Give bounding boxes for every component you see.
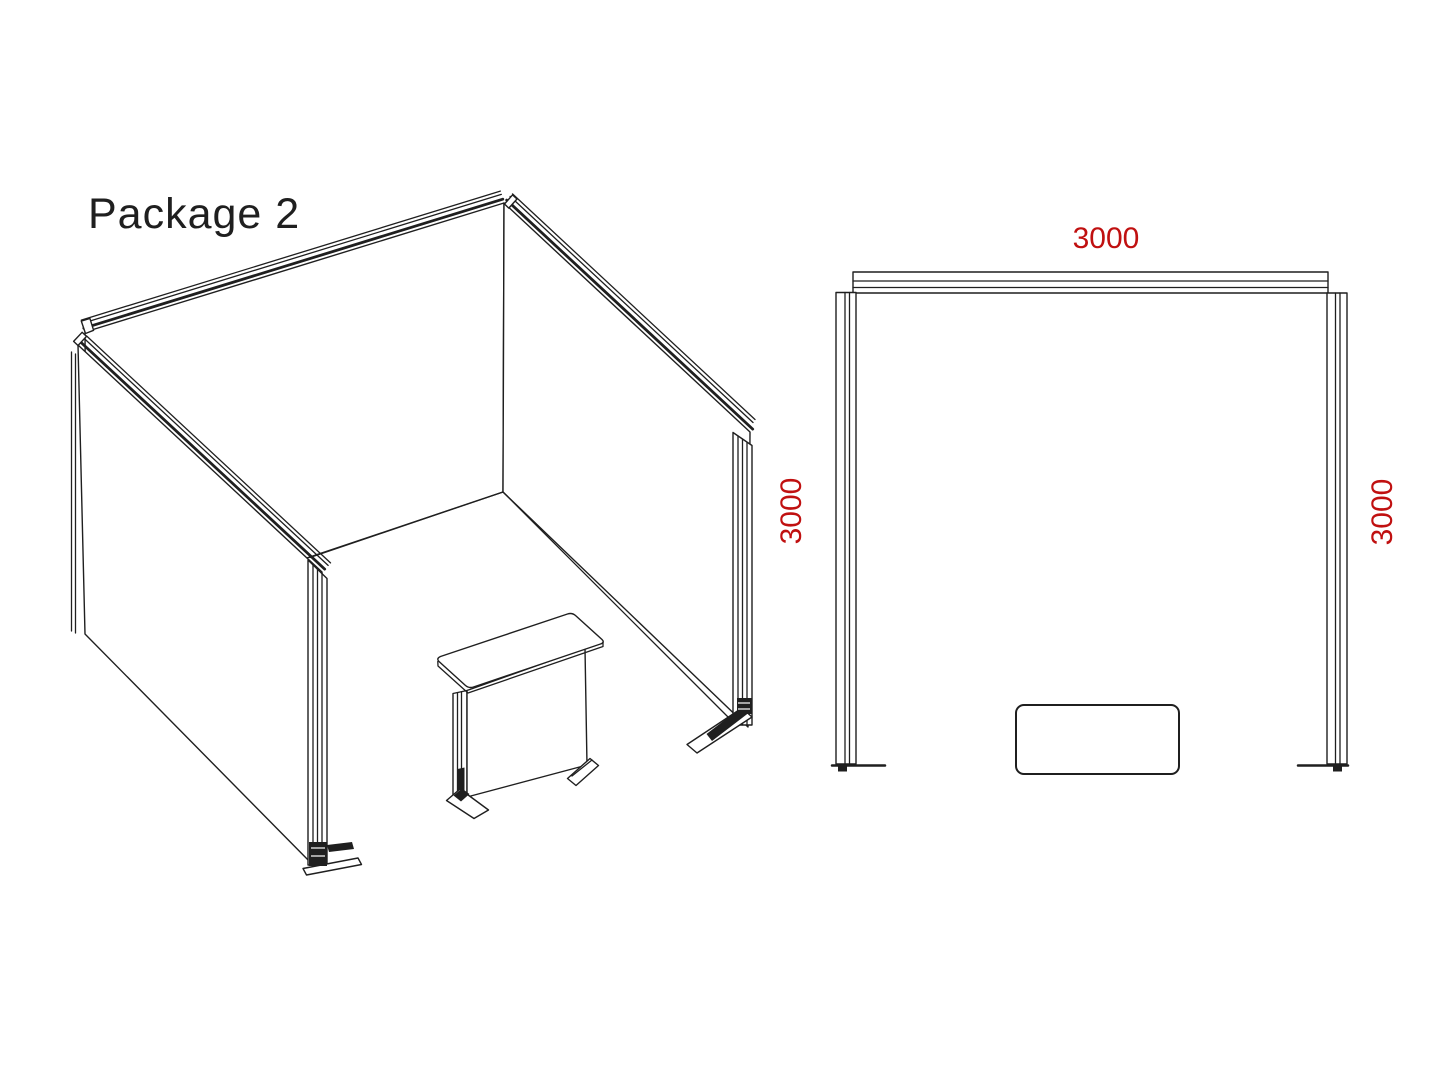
dimension-label-width: 3000: [1046, 224, 1166, 254]
dimension-label-depth-left: 3000: [777, 478, 807, 545]
isometric-view: [72, 191, 756, 875]
drawing-canvas: Package 2 3000 3000 3000: [0, 0, 1440, 1080]
left-wall-back-edge: [72, 352, 76, 633]
booth-line-drawing: [0, 0, 1440, 1080]
plan-left-wall: [832, 293, 885, 772]
plan-back-wall: [853, 272, 1328, 293]
right-wall-front-edge: [733, 433, 752, 726]
foot-arm: [327, 842, 354, 852]
left-wall-front-edge: [308, 560, 327, 865]
plan-counter: [1016, 705, 1179, 774]
plan-view: [832, 272, 1348, 774]
left-wall-base-foot: [303, 842, 362, 875]
plan-right-wall: [1298, 293, 1348, 772]
counter-table: [438, 614, 603, 819]
page-title: Package 2: [88, 192, 300, 237]
dimension-label-depth-right: 3000: [1368, 479, 1398, 546]
